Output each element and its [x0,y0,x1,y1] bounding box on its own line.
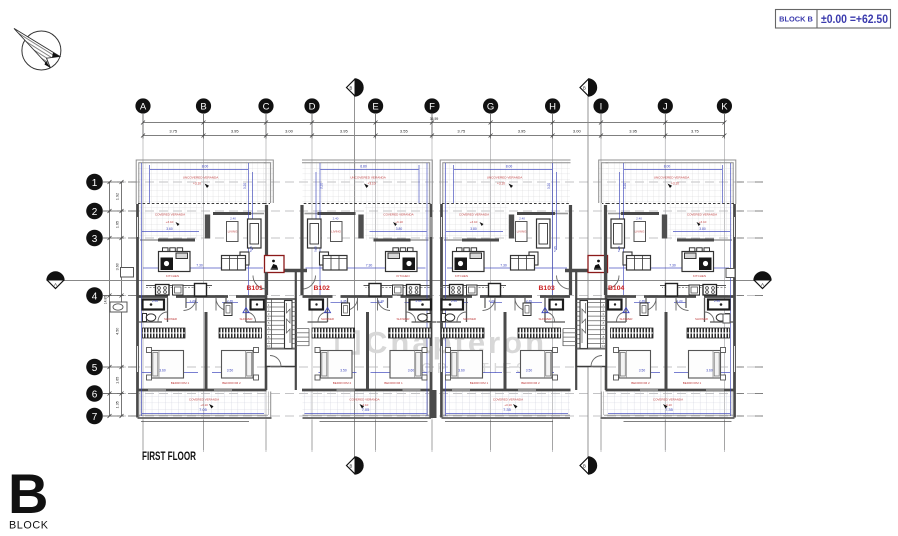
svg-text:7.30: 7.30 [669,264,676,268]
svg-text:SHOWER: SHOWER [164,317,177,321]
svg-text:K: K [721,101,728,112]
svg-text:G: G [487,101,494,112]
svg-text:BEDROOM 2: BEDROOM 2 [521,381,540,385]
svg-text:1.92: 1.92 [116,193,120,200]
svg-text:1.35: 1.35 [116,401,120,408]
svg-text:A: A [54,282,57,287]
svg-text:3.20: 3.20 [547,183,551,189]
svg-text:6: 6 [92,389,98,400]
svg-text:±0.00 =+62.50: ±0.00 =+62.50 [821,12,888,26]
svg-text:A: A [761,282,764,287]
svg-text:FIRST FLOOR: FIRST FLOOR [142,449,196,463]
svg-text:2.65: 2.65 [152,299,158,303]
svg-text:4: 4 [92,291,98,302]
svg-text:5.05: 5.05 [249,246,253,252]
svg-text:+3.10: +3.10 [470,220,478,224]
svg-text:B: B [350,86,353,91]
svg-text:3.60: 3.60 [159,369,166,373]
svg-text:3.00: 3.00 [285,129,294,134]
svg-text:1.65: 1.65 [116,377,120,384]
svg-text:F: F [429,101,435,112]
svg-text:BEDROOM 2: BEDROOM 2 [631,381,650,385]
svg-text:SHOWER: SHOWER [538,317,551,321]
svg-text:E: E [372,101,378,112]
svg-text:3.00: 3.00 [573,129,582,134]
svg-text:LIVING: LIVING [331,230,342,234]
svg-text:BEDROOM 1: BEDROOM 1 [171,381,190,385]
svg-text:5.05: 5.05 [617,246,621,252]
svg-text:A: A [140,101,147,112]
svg-text:2.35: 2.35 [526,299,532,303]
svg-text:5.05: 5.05 [553,246,557,252]
svg-text:SHOWER: SHOWER [619,317,632,321]
svg-text:KITCHEN: KITCHEN [396,274,409,278]
svg-text:2.40: 2.40 [636,217,642,221]
svg-text:SHOWER: SHOWER [239,317,252,321]
svg-text:+3.10: +3.10 [166,220,174,224]
svg-text:BLOCK B: BLOCK B [779,14,813,23]
svg-text:3.20: 3.20 [623,183,627,189]
svg-text:COVERED VERANDA: COVERED VERANDA [687,212,717,216]
svg-text:I: I [600,101,603,112]
svg-text:7.35: 7.35 [665,407,674,412]
svg-text:UNCOVERED VERANDA: UNCOVERED VERANDA [654,176,691,180]
svg-text:COVERED VERANDA: COVERED VERANDA [383,212,413,216]
svg-text:+3.10: +3.10 [367,182,375,186]
svg-text:UNCOVERED VERANDA: UNCOVERED VERANDA [350,176,387,180]
svg-text:B102: B102 [314,285,330,292]
svg-text:3.20: 3.20 [320,183,324,189]
svg-text:KITCHEN: KITCHEN [455,274,468,278]
svg-text:SHOWER: SHOWER [396,317,409,321]
svg-text:UNCOVERED VERANDA: UNCOVERED VERANDA [487,176,524,180]
svg-text:1.20: 1.20 [189,299,195,303]
svg-text:5: 5 [92,363,98,374]
svg-text:7: 7 [92,412,98,423]
svg-text:B: B [200,101,206,112]
svg-text:KITCHEN: KITCHEN [693,274,706,278]
svg-text:3.60: 3.60 [408,369,415,373]
svg-text:BLOCK: BLOCK [9,520,49,532]
svg-text:SHOWER: SHOWER [695,317,708,321]
svg-text:7.30: 7.30 [196,264,203,268]
svg-text:LIVING: LIVING [635,230,646,234]
svg-text:2.35: 2.35 [340,299,346,303]
svg-text:BEDROOM 2: BEDROOM 2 [333,381,352,385]
svg-text:B: B [583,86,586,91]
svg-text:3.80: 3.80 [470,227,477,231]
svg-text:14.85: 14.85 [104,296,108,305]
svg-text:2.65: 2.65 [714,299,720,303]
svg-text:COVERED VERANDA: COVERED VERANDA [189,398,219,402]
svg-text:B: B [8,462,48,525]
svg-text:3.75: 3.75 [691,129,700,134]
svg-text:BEDROOM 2: BEDROOM 2 [222,381,241,385]
svg-text:3.95: 3.95 [518,129,527,134]
svg-text:C: C [263,101,270,112]
svg-text:8.00: 8.00 [664,165,671,169]
svg-text:B: B [350,464,353,469]
svg-text:3.20: 3.20 [243,183,247,189]
svg-text:2.35: 2.35 [227,299,233,303]
svg-text:1.65: 1.65 [116,221,120,228]
svg-text:B: B [583,464,586,469]
svg-text:+3.10: +3.10 [193,182,201,186]
svg-text:+3.10: +3.10 [497,182,505,186]
svg-text:8.00: 8.00 [202,165,209,169]
svg-text:7.35: 7.35 [503,407,512,412]
svg-text:7.05: 7.05 [199,407,208,412]
svg-text:3.50: 3.50 [227,369,234,373]
svg-text:+3.10: +3.10 [699,220,707,224]
svg-text:UNCOVERED VERANDA: UNCOVERED VERANDA [183,176,220,180]
svg-text:COVERED VERANDA: COVERED VERANDA [459,212,489,216]
svg-text:7.05: 7.05 [362,407,371,412]
svg-text:COVERED VERANDA: COVERED VERANDA [653,398,683,402]
svg-text:COVERED VERANDA: COVERED VERANDA [349,398,379,402]
svg-text:3.60: 3.60 [116,263,120,270]
svg-text:2.65: 2.65 [415,299,421,303]
svg-text:3: 3 [92,234,98,245]
svg-text:7.30: 7.30 [366,264,373,268]
svg-text:BEDROOM 1: BEDROOM 1 [683,381,702,385]
svg-text:3.60: 3.60 [706,369,713,373]
svg-text:LIVING: LIVING [517,230,528,234]
svg-text:1.20: 1.20 [676,299,682,303]
svg-text:2.40: 2.40 [333,217,339,221]
svg-text:6.80: 6.80 [360,165,367,169]
svg-text:COVERED VERANDA: COVERED VERANDA [493,398,523,402]
svg-text:3.60: 3.60 [458,369,465,373]
svg-text:3.95: 3.95 [629,129,638,134]
svg-text:J: J [663,101,668,112]
svg-text:B103: B103 [539,285,555,292]
svg-text:1.20: 1.20 [378,299,384,303]
svg-text:1.20: 1.20 [488,299,494,303]
svg-text:36.59: 36.59 [430,117,439,121]
svg-text:BEDROOM 1: BEDROOM 1 [470,381,489,385]
svg-text:2.40: 2.40 [519,217,525,221]
svg-text:H: H [549,101,556,112]
svg-text:3.80: 3.80 [699,227,706,231]
svg-text:LIVING: LIVING [228,230,239,234]
svg-text:3.95: 3.95 [340,129,349,134]
svg-text:3.55: 3.55 [400,129,409,134]
svg-text:+3.10: +3.10 [395,220,403,224]
svg-text:B101: B101 [247,285,263,292]
svg-text:BEDROOM 1: BEDROOM 1 [384,381,403,385]
svg-text:COVERED VERANDA: COVERED VERANDA [155,212,185,216]
svg-text:3.75: 3.75 [457,129,466,134]
svg-text:B104: B104 [608,285,624,292]
svg-text:8.00: 8.00 [506,165,513,169]
svg-text:2.35: 2.35 [639,299,645,303]
svg-text:2.40: 2.40 [230,217,236,221]
svg-text:3.50: 3.50 [639,369,646,373]
svg-text:4.50: 4.50 [116,328,120,335]
svg-text:2: 2 [92,207,98,218]
svg-text:+3.10: +3.10 [671,182,679,186]
svg-text:3.60: 3.60 [166,227,173,231]
svg-text:3.95: 3.95 [231,129,240,134]
svg-text:3.75: 3.75 [169,129,178,134]
svg-text:5.05: 5.05 [314,246,318,252]
svg-text:KITCHEN: KITCHEN [166,274,179,278]
svg-text:SHOWER: SHOWER [321,317,334,321]
svg-text:3.80: 3.80 [396,227,403,231]
svg-text:2.65: 2.65 [451,299,457,303]
svg-text:3.50: 3.50 [526,369,533,373]
svg-text:7.30: 7.30 [500,264,507,268]
svg-text:D: D [309,101,316,112]
svg-text:1: 1 [92,178,98,189]
svg-text:3.50: 3.50 [340,369,347,373]
svg-text:SHOWER: SHOWER [463,317,476,321]
